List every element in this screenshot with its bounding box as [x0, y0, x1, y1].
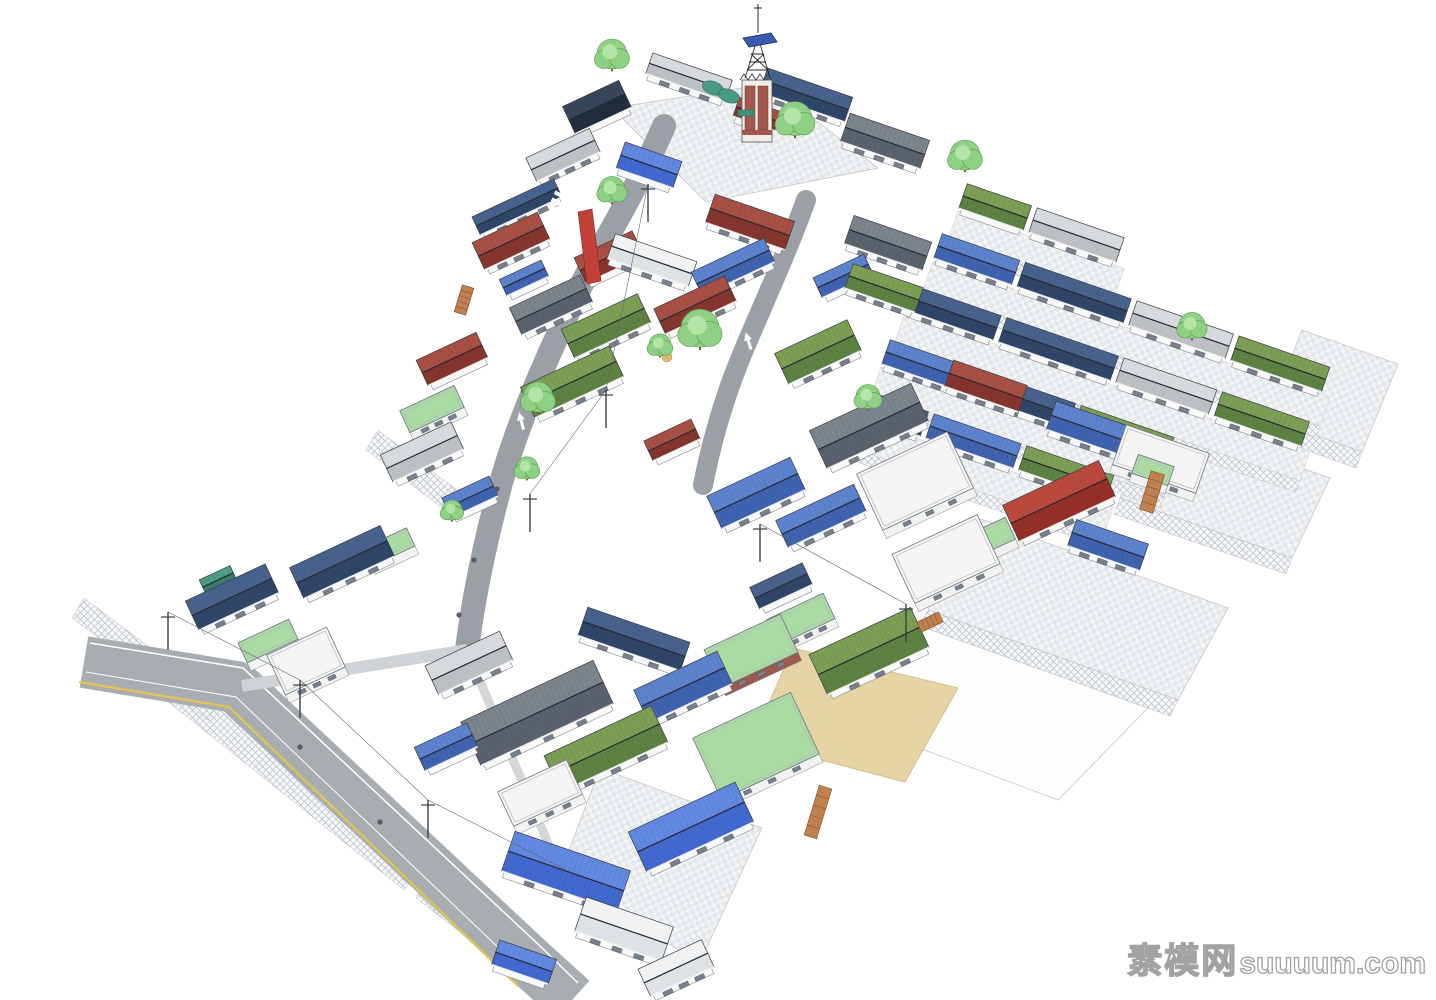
- tree-highlight: [784, 108, 801, 125]
- manhole: [456, 612, 461, 617]
- model-render-page: 素模网suuuum.com: [0, 0, 1436, 1000]
- tower-brick-panel: [758, 86, 768, 130]
- tree-highlight: [446, 504, 456, 514]
- manhole: [471, 557, 476, 562]
- house: [644, 419, 703, 466]
- tree-highlight: [955, 145, 970, 160]
- village-3d-model: [0, 0, 1436, 1000]
- house: [290, 525, 398, 604]
- manhole: [297, 744, 302, 749]
- house: [605, 234, 697, 292]
- house: [775, 320, 864, 390]
- tree: [594, 39, 629, 71]
- staircase: [454, 285, 474, 315]
- tower-brick-panel: [745, 86, 755, 130]
- tower-brick-band: [742, 130, 772, 135]
- tree-highlight: [653, 338, 664, 349]
- utility-pole: [161, 612, 175, 650]
- stair-body: [454, 285, 474, 315]
- tree: [647, 334, 673, 358]
- cross-finial: [754, 4, 762, 12]
- tree-highlight: [520, 461, 531, 472]
- utility-pole: [599, 390, 613, 428]
- tree-highlight: [860, 389, 872, 401]
- tower-awning: [738, 110, 754, 116]
- manhole: [377, 819, 382, 824]
- tree-highlight: [1184, 317, 1197, 330]
- mast-platform: [743, 33, 777, 47]
- tree-highlight: [604, 181, 617, 194]
- staircase: [804, 785, 832, 839]
- stair-body: [804, 785, 832, 839]
- tree-highlight: [688, 316, 707, 335]
- house: [563, 80, 634, 139]
- crosswalk-stripe: [545, 211, 558, 220]
- house: [526, 128, 603, 187]
- house: [416, 332, 490, 391]
- tree: [597, 176, 627, 204]
- tree-highlight: [602, 44, 617, 59]
- tree-highlight: [528, 387, 543, 402]
- house: [414, 723, 480, 777]
- utility-pole: [523, 494, 537, 532]
- utility-pole: [753, 524, 767, 562]
- manhole: [494, 486, 499, 491]
- tree: [947, 140, 982, 172]
